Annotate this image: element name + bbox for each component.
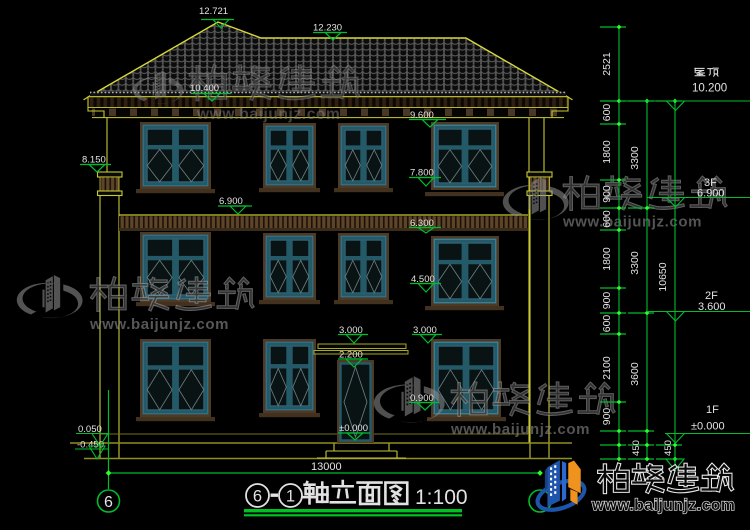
svg-text:6.900: 6.900	[219, 196, 243, 207]
svg-text:3300: 3300	[629, 251, 641, 275]
svg-text:1F: 1F	[706, 404, 719, 416]
svg-text:www.baijunjz.com: www.baijunjz.com	[196, 106, 340, 123]
svg-text:900: 900	[601, 185, 613, 203]
svg-text:±0.000: ±0.000	[691, 421, 725, 433]
svg-text:12.230: 12.230	[313, 23, 342, 34]
svg-text:3300: 3300	[629, 146, 641, 170]
svg-text:600: 600	[601, 315, 613, 333]
svg-text:6.900: 6.900	[697, 188, 725, 200]
svg-text:www.baijunjz.com: www.baijunjz.com	[450, 421, 590, 438]
svg-text:1:100: 1:100	[415, 486, 468, 509]
svg-text:www.baijunjz.com: www.baijunjz.com	[591, 497, 735, 514]
svg-text:900: 900	[601, 408, 613, 426]
svg-text:12.721: 12.721	[199, 6, 228, 17]
svg-text:www.baijunjz.com: www.baijunjz.com	[562, 214, 702, 231]
svg-text:6: 6	[104, 494, 113, 511]
svg-text:7.800: 7.800	[410, 168, 434, 179]
svg-text:900: 900	[601, 292, 613, 310]
svg-text:2100: 2100	[601, 356, 613, 380]
svg-text:600: 600	[601, 210, 613, 228]
svg-text:10.400: 10.400	[190, 83, 219, 94]
svg-text:13000: 13000	[311, 461, 342, 473]
svg-text:6: 6	[253, 488, 262, 506]
svg-text:2521: 2521	[601, 52, 613, 76]
svg-text:10.200: 10.200	[692, 83, 727, 95]
svg-text:450: 450	[631, 440, 642, 456]
svg-text:1: 1	[286, 488, 295, 506]
svg-text:10650: 10650	[657, 262, 669, 291]
svg-text:1800: 1800	[601, 140, 613, 164]
svg-text:±0.000: ±0.000	[339, 423, 368, 434]
svg-text:1800: 1800	[601, 247, 613, 271]
svg-text:3600: 3600	[629, 362, 641, 386]
svg-text:8.150: 8.150	[82, 155, 106, 166]
svg-text:450: 450	[663, 440, 674, 456]
svg-text:www.baijunjz.com: www.baijunjz.com	[89, 316, 229, 333]
svg-text:600: 600	[601, 104, 613, 122]
svg-text:3.600: 3.600	[698, 301, 726, 313]
